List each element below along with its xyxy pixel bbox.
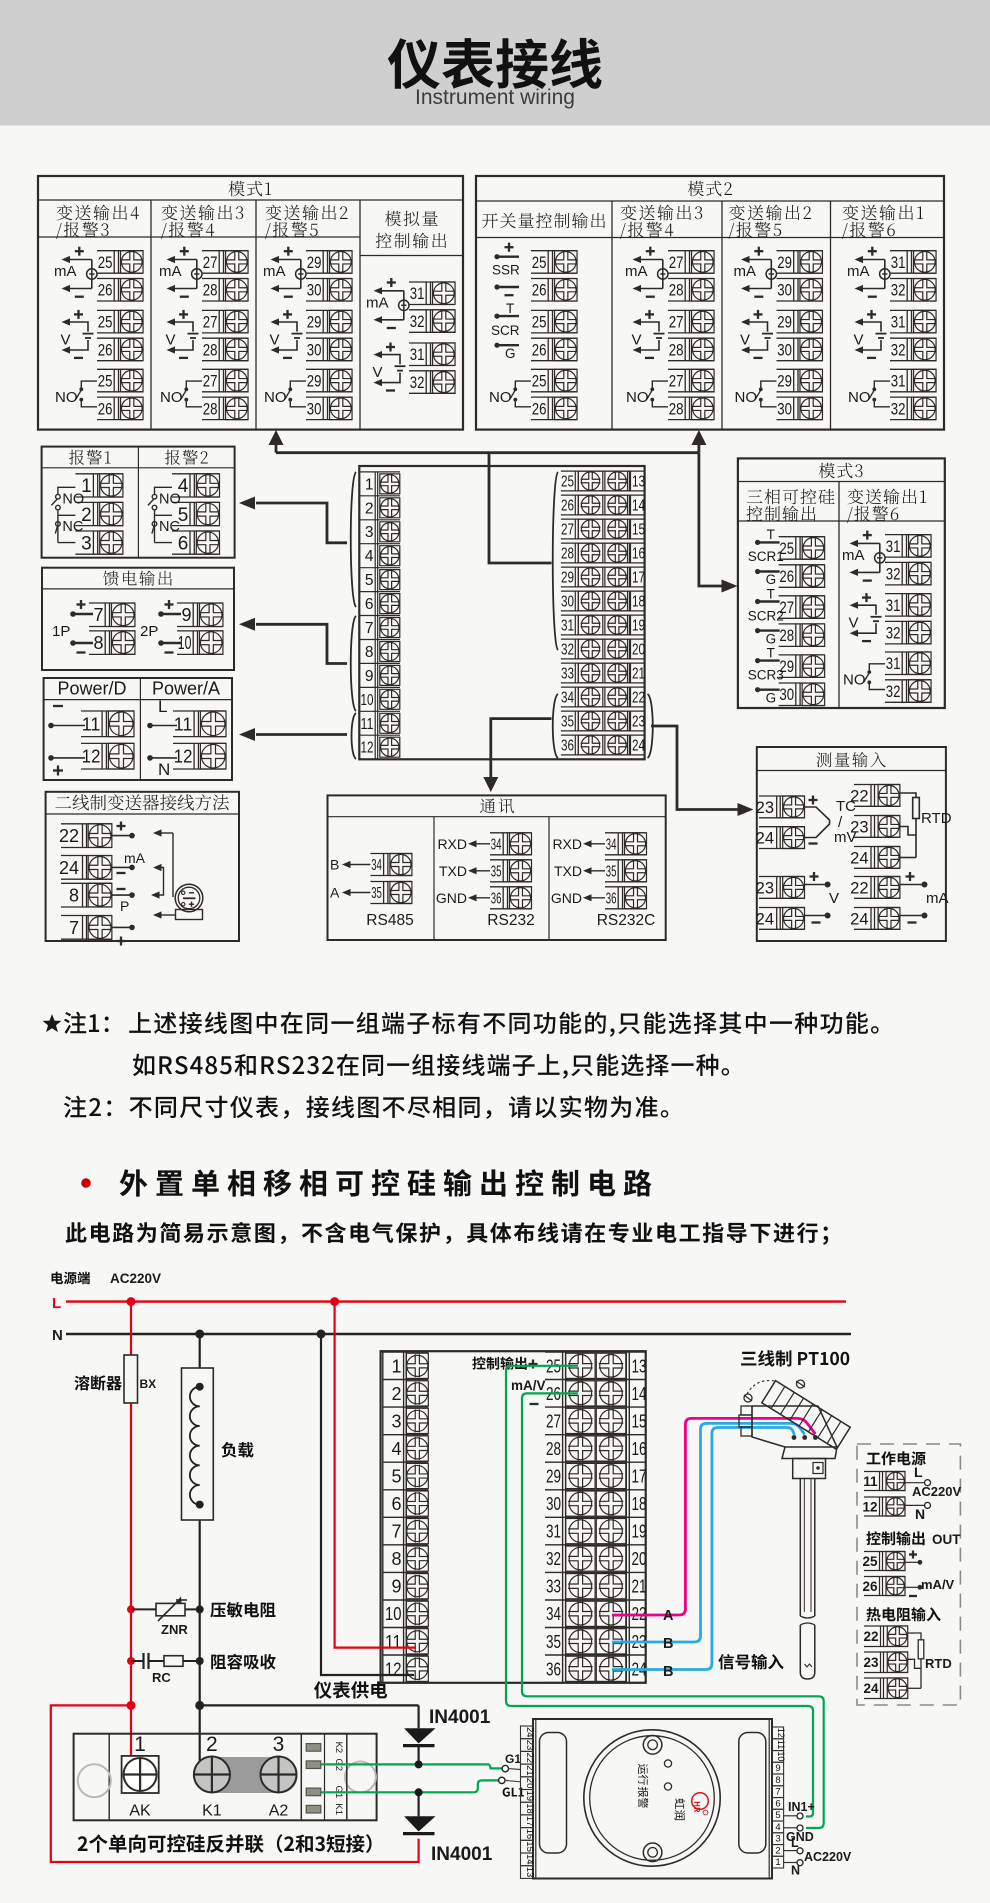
svg-text:N: N [158,760,170,779]
svg-text:mA: mA [625,263,648,280]
svg-text:NO: NO [62,491,84,507]
svg-text:3: 3 [391,1411,401,1431]
svg-text:8: 8 [69,886,79,906]
svg-text:NO: NO [264,389,287,406]
svg-text:RXD: RXD [437,836,467,852]
svg-text:32: 32 [886,625,901,643]
svg-text:12: 12 [82,747,101,767]
svg-text:19: 19 [524,1791,535,1802]
svg-text:20: 20 [524,1778,535,1789]
svg-text:RTD: RTD [921,810,952,827]
svg-text:27: 27 [203,314,218,332]
svg-text:17: 17 [524,1816,535,1827]
svg-text:1: 1 [134,1733,146,1756]
svg-text:29: 29 [307,314,322,332]
svg-text:18: 18 [524,1803,535,1814]
svg-text:G1: G1 [505,1752,521,1766]
svg-text:7: 7 [69,918,79,938]
svg-text:25: 25 [98,314,113,332]
svg-text:IN1+: IN1+ [788,1800,815,1814]
svg-text:6: 6 [391,1494,401,1514]
svg-text:28: 28 [203,400,218,418]
svg-text:17: 17 [632,570,645,587]
svg-text:26: 26 [532,341,547,359]
svg-text:28: 28 [203,282,218,300]
svg-text:6: 6 [178,533,189,554]
svg-text:22: 22 [59,826,79,846]
svg-text:36: 36 [491,890,502,907]
svg-text:15: 15 [632,522,645,539]
svg-text:31: 31 [561,618,574,635]
svg-text:34: 34 [371,857,382,874]
svg-text:29: 29 [307,254,322,272]
svg-text:7: 7 [93,605,103,625]
svg-text:33: 33 [546,1577,561,1597]
svg-text:23: 23 [524,1740,535,1751]
svg-text:31: 31 [886,538,901,556]
svg-text:7: 7 [775,1787,780,1798]
svg-text:17: 17 [632,1467,647,1487]
svg-text:1: 1 [775,1857,780,1868]
svg-text:11: 11 [82,714,101,734]
svg-text:8: 8 [365,644,374,661]
svg-text:L: L [158,697,167,716]
svg-text:34: 34 [491,836,502,853]
svg-text:NO: NO [626,389,649,406]
svg-text:AC220V: AC220V [912,1484,961,1499]
svg-text:9: 9 [365,668,374,685]
svg-text:12: 12 [776,1728,786,1738]
svg-text:26: 26 [779,568,794,586]
svg-text:2: 2 [206,1733,218,1756]
svg-text:3: 3 [273,1733,285,1756]
svg-text:32: 32 [410,313,425,331]
svg-text:12: 12 [361,740,374,757]
svg-text:A2: A2 [269,1803,289,1820]
svg-text:3: 3 [81,533,92,554]
svg-text:6: 6 [775,1798,780,1809]
svg-text:10: 10 [361,692,374,709]
svg-text:33: 33 [561,666,574,683]
svg-text:27: 27 [561,522,574,539]
svg-text:B: B [663,1664,673,1680]
svg-text:22: 22 [632,690,645,707]
svg-text:G: G [766,690,777,705]
svg-text:B: B [663,1636,673,1652]
svg-text:31: 31 [886,655,901,673]
svg-text:mA: mA [926,890,949,907]
svg-text:8: 8 [391,1549,401,1569]
svg-text:27: 27 [669,254,684,272]
svg-text:35: 35 [546,1632,561,1652]
svg-text:B: B [330,857,339,873]
svg-text:2: 2 [365,500,374,517]
svg-text:16: 16 [632,546,645,563]
svg-text:31: 31 [891,254,906,272]
svg-text:AC220V: AC220V [804,1850,852,1864]
svg-text:11: 11 [174,714,193,734]
svg-text:T: T [767,645,775,660]
svg-text:6: 6 [365,596,374,613]
svg-text:12: 12 [385,1659,402,1679]
svg-text:GND: GND [436,890,467,906]
svg-text:36: 36 [561,738,574,755]
svg-text:23: 23 [632,714,645,731]
svg-text:30: 30 [779,686,794,704]
svg-text:NO: NO [159,491,181,507]
svg-text:22: 22 [863,1629,878,1644]
svg-text:36: 36 [606,890,617,907]
svg-text:30: 30 [777,341,792,359]
svg-text:29: 29 [777,314,792,332]
svg-text:35: 35 [371,885,382,902]
svg-text:N: N [52,1327,63,1344]
svg-text:GND: GND [551,890,582,906]
svg-text:14: 14 [632,498,645,515]
svg-text:L: L [791,1836,799,1850]
svg-text:22: 22 [850,879,868,897]
svg-text:5: 5 [365,572,374,589]
svg-text:23: 23 [756,879,774,897]
svg-text:1P: 1P [52,623,70,640]
svg-text:29: 29 [307,373,322,391]
svg-text:12: 12 [174,747,193,767]
svg-text:28: 28 [669,341,684,359]
svg-text:22: 22 [524,1753,535,1764]
svg-text:19: 19 [632,618,645,635]
svg-text:28: 28 [203,341,218,359]
svg-text:25: 25 [862,1554,878,1569]
svg-text:25: 25 [561,474,574,491]
svg-text:12: 12 [862,1500,877,1515]
svg-text:34: 34 [546,1604,561,1624]
svg-text:L: L [52,1295,61,1312]
svg-text:25: 25 [98,254,113,272]
svg-text:1: 1 [365,476,374,493]
svg-text:V: V [373,364,383,381]
svg-text:G: G [505,346,516,361]
svg-text:IN4001: IN4001 [431,1844,493,1865]
svg-text:15: 15 [632,1411,647,1431]
svg-text:10: 10 [776,1751,786,1761]
svg-text:V: V [270,331,280,348]
svg-text:32: 32 [561,642,574,659]
svg-text:L: L [914,1464,923,1480]
svg-text:AK: AK [129,1803,151,1820]
svg-text:RS485: RS485 [366,912,413,929]
svg-text:22: 22 [850,787,868,805]
svg-text:K1: K1 [202,1803,222,1820]
svg-text:V: V [849,615,859,632]
svg-text:24: 24 [632,738,645,755]
svg-text:24: 24 [524,1727,535,1738]
svg-text:23: 23 [756,799,774,817]
svg-text:34: 34 [606,836,617,853]
svg-text:30: 30 [307,400,322,418]
svg-text:V: V [740,331,750,348]
svg-text:36: 36 [546,1659,561,1679]
svg-text:Instrument wiring: Instrument wiring [415,86,575,109]
svg-text:29: 29 [777,254,792,272]
svg-text:NO: NO [160,389,183,406]
svg-text:21: 21 [632,666,645,683]
svg-text:26: 26 [98,341,113,359]
svg-text:RXD: RXD [552,836,582,852]
svg-text:14: 14 [524,1854,535,1865]
svg-text:2: 2 [391,1384,401,1404]
svg-text:7: 7 [391,1522,401,1542]
svg-text:23: 23 [850,818,868,836]
svg-text:V: V [854,331,864,348]
svg-text:OUT: OUT [932,1532,961,1547]
svg-text:31: 31 [886,597,901,615]
svg-text:13: 13 [632,1356,647,1376]
svg-text:21: 21 [524,1765,535,1776]
svg-text:16: 16 [524,1829,535,1840]
svg-text:18: 18 [632,594,645,611]
svg-text:27: 27 [546,1411,561,1431]
svg-text:28: 28 [669,282,684,300]
svg-text:RS232: RS232 [487,912,534,929]
svg-text:32: 32 [891,341,906,359]
svg-text:25: 25 [532,314,547,332]
svg-text:TXD: TXD [439,863,467,879]
svg-text:BX: BX [140,1377,157,1391]
svg-text:mA: mA [842,547,865,564]
svg-text:N: N [915,1506,925,1522]
svg-text:32: 32 [886,683,901,701]
svg-text:NO: NO [843,672,866,689]
svg-text:28: 28 [779,627,794,645]
svg-text:3: 3 [775,1834,780,1845]
svg-text:30: 30 [561,594,574,611]
svg-text:IN4001: IN4001 [429,1707,491,1728]
svg-text:9: 9 [775,1763,780,1774]
svg-text:ZNR: ZNR [161,1622,188,1637]
svg-text:A: A [330,885,340,901]
svg-text:20: 20 [632,1549,647,1569]
svg-text:T: T [767,527,775,542]
svg-text:32: 32 [891,400,906,418]
svg-text:15: 15 [524,1841,535,1852]
svg-text:V: V [61,331,71,348]
svg-text:35: 35 [561,714,574,731]
svg-text:3: 3 [365,524,374,541]
svg-text:24: 24 [756,910,774,928]
svg-text:RC: RC [152,1670,171,1685]
svg-text:G: G [766,572,777,587]
svg-text:35: 35 [606,863,617,880]
svg-text:NO: NO [735,389,758,406]
svg-text:4: 4 [365,548,374,565]
svg-text:21: 21 [632,1577,647,1597]
svg-text:AC220V: AC220V [110,1271,161,1286]
svg-text:26: 26 [532,282,547,300]
svg-text:4: 4 [391,1439,401,1459]
svg-text:SCR3: SCR3 [748,667,784,682]
svg-text:2P: 2P [140,623,158,640]
svg-text:mA/V: mA/V [921,1577,955,1592]
svg-text:31: 31 [546,1522,561,1542]
svg-text:2: 2 [775,1845,780,1856]
svg-text:11: 11 [863,1474,878,1489]
svg-text:V: V [166,331,176,348]
svg-text:25: 25 [98,373,113,391]
svg-text:mA: mA [847,263,870,280]
svg-text:32: 32 [546,1549,561,1569]
svg-text:19: 19 [632,1522,647,1542]
svg-text:30: 30 [307,282,322,300]
svg-text:30: 30 [777,400,792,418]
svg-text:V: V [829,890,839,907]
svg-text:32: 32 [891,282,906,300]
svg-text:28: 28 [546,1439,561,1459]
svg-text:24: 24 [850,849,868,867]
svg-text:8: 8 [93,633,103,653]
svg-text:NC: NC [159,519,180,535]
svg-text:11: 11 [361,716,374,733]
svg-text:28: 28 [669,400,684,418]
svg-text:30: 30 [777,282,792,300]
svg-text:30: 30 [546,1494,561,1514]
svg-text:P: P [120,898,129,914]
svg-text:29: 29 [546,1467,561,1487]
svg-text:13: 13 [524,1867,535,1878]
svg-text:29: 29 [777,373,792,391]
svg-text:25: 25 [532,254,547,272]
svg-text:26: 26 [561,498,574,515]
svg-text:T: T [506,301,514,316]
svg-text:mA: mA [263,263,286,280]
svg-text:24: 24 [850,910,868,928]
svg-text:25: 25 [532,373,547,391]
svg-text:26: 26 [98,400,113,418]
svg-text:Power/D: Power/D [57,679,126,699]
svg-text:27: 27 [669,373,684,391]
svg-text:RS232C: RS232C [597,912,656,929]
svg-text:26: 26 [862,1579,878,1594]
svg-text:24: 24 [59,858,79,878]
svg-text:NO: NO [55,389,78,406]
svg-text:V: V [632,331,642,348]
svg-text:7: 7 [365,620,374,637]
svg-text:mA: mA [734,263,757,280]
svg-text:9: 9 [181,605,191,625]
svg-text:1: 1 [391,1356,401,1376]
svg-text:K2: K2 [333,1742,344,1754]
svg-text:4: 4 [775,1822,780,1833]
svg-text:28: 28 [561,546,574,563]
svg-text:K1: K1 [333,1803,344,1815]
svg-text:TXD: TXD [554,863,582,879]
svg-text:8: 8 [775,1775,780,1786]
svg-text:31: 31 [410,346,425,364]
svg-text:mA/V: mA/V [511,1378,546,1393]
svg-text:NO: NO [848,389,871,406]
svg-text:mA: mA [159,263,182,280]
svg-text:mA: mA [366,295,389,312]
svg-text:SCR2: SCR2 [748,608,784,623]
svg-text:T: T [767,586,775,601]
svg-text:35: 35 [491,863,502,880]
svg-text:5: 5 [391,1467,401,1487]
svg-text:29: 29 [561,570,574,587]
svg-text:9: 9 [391,1577,401,1597]
svg-text:24: 24 [863,1681,879,1696]
svg-text:34: 34 [561,690,574,707]
svg-text:23: 23 [863,1655,879,1670]
svg-text:18: 18 [632,1494,647,1514]
svg-text:A: A [663,1608,674,1624]
svg-text:mA: mA [54,263,77,280]
svg-text:11: 11 [385,1632,402,1652]
svg-text:27: 27 [203,254,218,272]
svg-text:G: G [766,631,777,646]
svg-text:10: 10 [385,1604,402,1624]
svg-text:5: 5 [775,1810,780,1821]
svg-text:Power/A: Power/A [152,679,220,699]
svg-text:16: 16 [632,1439,647,1459]
svg-text:14: 14 [632,1384,647,1404]
svg-text:26: 26 [98,282,113,300]
svg-text:27: 27 [669,314,684,332]
svg-text:27: 27 [203,373,218,391]
svg-text:13: 13 [632,474,645,491]
svg-text:32: 32 [410,374,425,392]
svg-text:N: N [791,1864,800,1878]
svg-text:31: 31 [891,314,906,332]
svg-text:26: 26 [532,400,547,418]
svg-text:SCR1: SCR1 [748,549,784,564]
svg-text:SSR: SSR [492,263,520,278]
svg-text:mA: mA [124,850,146,866]
svg-text:24: 24 [756,830,774,848]
svg-text:SCR: SCR [491,323,520,338]
svg-text:31: 31 [410,285,425,303]
svg-text:30: 30 [307,341,322,359]
svg-text:NC: NC [62,519,83,535]
svg-text:31: 31 [891,373,906,391]
svg-text:11: 11 [776,1740,786,1749]
svg-text:32: 32 [886,566,901,584]
svg-text:20: 20 [632,642,645,659]
svg-text:RTD: RTD [925,1656,952,1671]
svg-text:NO: NO [489,389,512,406]
